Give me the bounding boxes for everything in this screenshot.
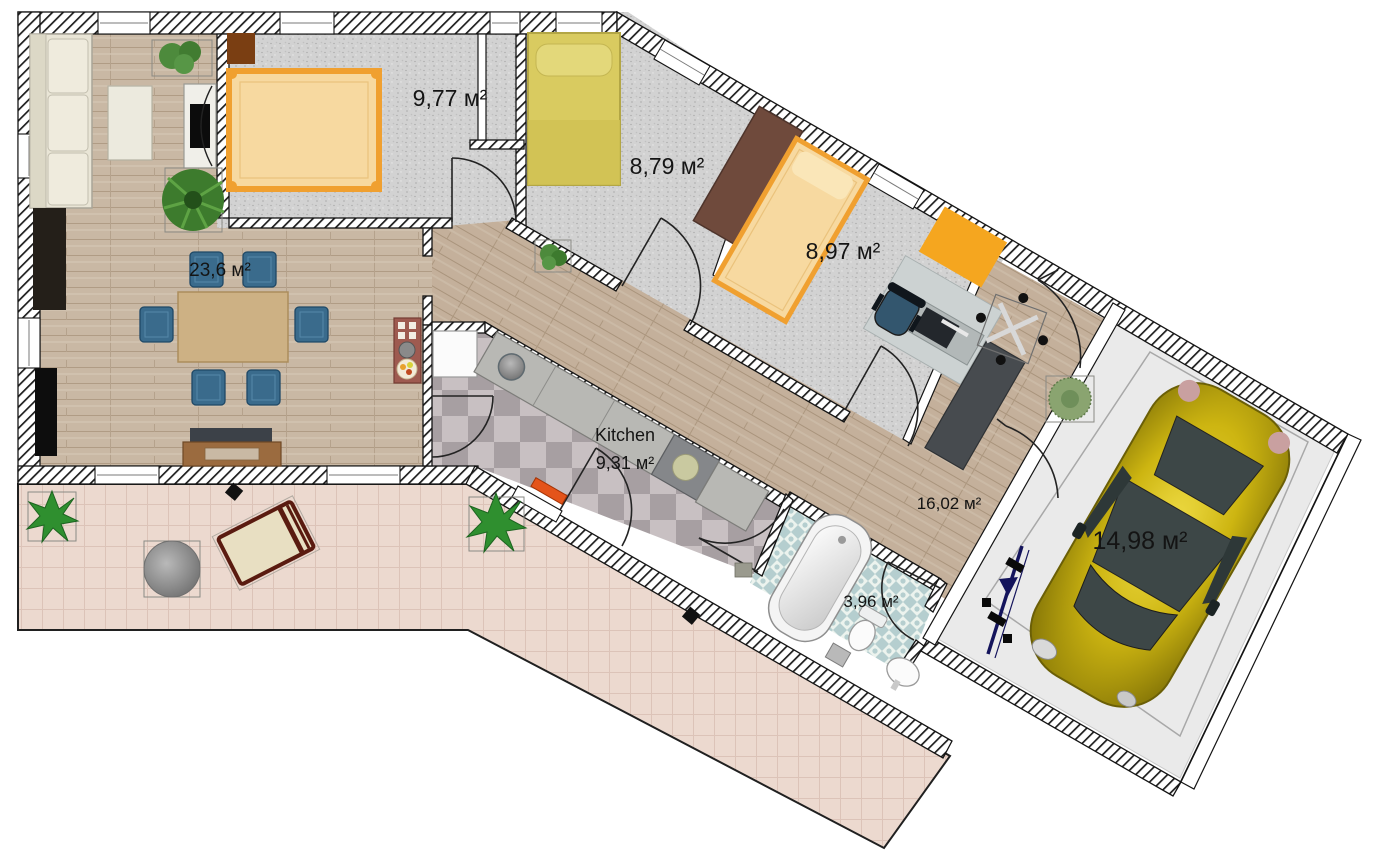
fridge[interactable] <box>433 331 477 377</box>
cabinet-dark[interactable] <box>33 208 66 310</box>
area-label-hall[interactable]: 16,02 м² <box>917 494 982 513</box>
floor-plan-canvas: 9,77 м² 8,79 м² 8,97 м² 23,6 м² Kitchen … <box>0 0 1380 857</box>
wall-bedroom1-bedroom2[interactable] <box>516 34 526 228</box>
wall-bottom[interactable] <box>18 466 478 484</box>
floor-drain <box>735 563 752 577</box>
wall-bedroom1-bottom[interactable] <box>229 218 452 228</box>
wall-closet-bottom[interactable] <box>470 140 524 149</box>
wardrobe-small-brown[interactable] <box>227 33 255 64</box>
wall-living-kitchen[interactable] <box>423 325 432 466</box>
area-label-bedroom1[interactable]: 9,77 м² <box>413 85 488 111</box>
coffee-table[interactable] <box>108 86 152 160</box>
shelf-unit-decor[interactable] <box>394 318 421 383</box>
sofa[interactable] <box>30 34 92 208</box>
tv-stand[interactable] <box>184 84 216 168</box>
name-label-kitchen[interactable]: Kitchen <box>595 425 655 445</box>
area-label-garage[interactable]: 14,98 м² <box>1092 527 1187 555</box>
washer-small[interactable] <box>825 643 850 667</box>
wall-living-hall-a[interactable] <box>423 228 432 256</box>
area-label-kitchen[interactable]: 9,31 м² <box>596 453 654 473</box>
area-label-bedroom2[interactable]: 8,79 м² <box>630 153 705 179</box>
wall-living-hall-b[interactable] <box>423 296 432 325</box>
shelf-black[interactable] <box>35 368 57 456</box>
bed-single-bedroom2[interactable] <box>528 33 620 185</box>
tv <box>190 104 210 148</box>
area-label-bedroom3[interactable]: 8,97 м² <box>806 238 881 264</box>
sideboard[interactable] <box>183 428 281 466</box>
dining-table[interactable] <box>178 292 288 362</box>
bed-double-bedroom1[interactable] <box>227 69 381 191</box>
area-label-living[interactable]: 23,6 м² <box>189 260 251 281</box>
terrace-round-table[interactable] <box>144 541 200 597</box>
area-label-bathroom[interactable]: 3,96 м² <box>843 592 898 611</box>
floor-plan-svg: 9,77 м² 8,79 м² 8,97 м² 23,6 м² Kitchen … <box>0 0 1380 857</box>
